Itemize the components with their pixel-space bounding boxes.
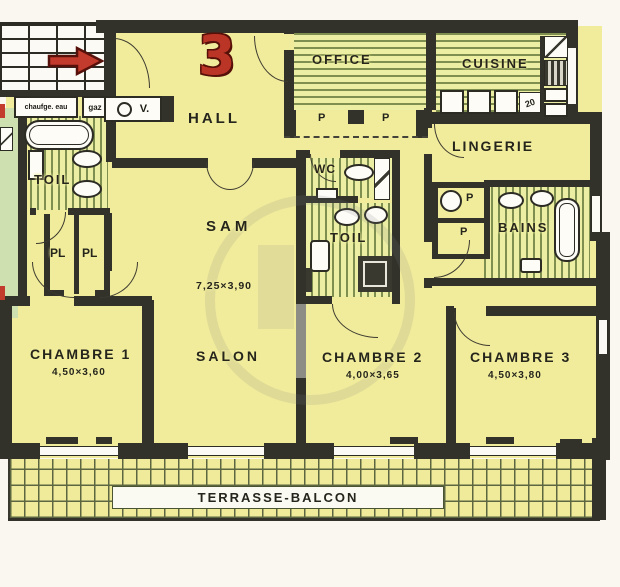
bathtub-icon — [24, 120, 94, 150]
wc-toilet-icon — [344, 164, 374, 181]
wall-chambre1-left — [0, 296, 12, 458]
kitchen-unit-2 — [544, 103, 568, 117]
chambre1-dimensions: 4,50×3,60 — [52, 367, 106, 378]
terrace-edge — [8, 518, 600, 521]
wall-p-divider — [432, 218, 484, 223]
office-hatch — [294, 33, 426, 110]
toilette-gauche-label: TOIL — [34, 172, 71, 187]
wall-pl-mid — [74, 214, 79, 294]
pier-4 — [414, 443, 470, 459]
wall-wc-top — [340, 150, 400, 158]
placard-bains-1-label: P — [466, 192, 473, 204]
vestiaire-box: V. — [104, 96, 162, 122]
wall-chambre3-top-b — [486, 306, 602, 316]
chambre1-label: CHAMBRE 1 — [30, 346, 131, 362]
sill-tab-2 — [96, 437, 112, 444]
window-right-lower — [598, 320, 608, 354]
wall-bains-top — [484, 180, 590, 187]
vestiaire-circle-icon — [117, 102, 132, 117]
window-right-upper — [567, 48, 577, 104]
wall-office-cuisine — [426, 26, 436, 110]
wall-hall-left — [106, 122, 116, 162]
wall-hall-sam-left — [112, 158, 208, 168]
wc-label: WC — [314, 162, 336, 176]
bains-label: BAINS — [498, 220, 548, 235]
kitchen-badge: 20 — [519, 92, 541, 113]
red-mark-2 — [0, 286, 5, 300]
placard-bains-2-label: P — [460, 226, 467, 238]
pier-2 — [118, 443, 188, 459]
placard-office-1-label: P — [318, 112, 325, 124]
kitchen-fridge-icon — [544, 36, 568, 58]
sam-dimensions: 7,25×3,90 — [196, 280, 252, 292]
salon-label: SALON — [196, 348, 260, 364]
placard-office-2-label: P — [382, 112, 389, 124]
bains-toilet-icon — [498, 192, 524, 209]
pier-1 — [0, 443, 40, 459]
post-placards-left — [284, 110, 296, 138]
bains-bidet-icon — [530, 190, 554, 207]
kitchen-unit-1 — [544, 88, 568, 102]
kitchen-appliance-1 — [440, 90, 464, 114]
pier-3 — [264, 443, 334, 459]
bidet-icon — [72, 180, 102, 198]
sill-tab-1 — [46, 437, 78, 444]
wall-vestiaire-stub — [160, 96, 174, 122]
bains-bathtub-icon — [554, 198, 580, 262]
chambre3-dimensions: 4,50×3,80 — [488, 370, 542, 381]
post-placards-mid — [348, 110, 364, 124]
chambre3-label: CHAMBRE 3 — [470, 349, 571, 365]
wall-bains-bottom — [424, 278, 602, 286]
wall-chambre2-chambre3 — [446, 308, 456, 446]
placard-left-1-label: PL — [50, 246, 65, 260]
terrasse-label: TERRASSE-BALCON — [198, 490, 359, 505]
wall-chambre3-top-a — [446, 306, 454, 316]
wall-p-top — [432, 182, 490, 188]
terrace-band: TERRASSE-BALCON — [112, 486, 444, 509]
kitchen-appliance-3 — [494, 90, 518, 114]
chambre2-label: CHAMBRE 2 — [322, 349, 423, 365]
wall-lingerie-left-a — [424, 108, 432, 128]
sill-tab-5 — [560, 439, 582, 446]
kitchen-stove-icon — [544, 60, 568, 86]
placards-front-line — [284, 136, 428, 138]
office-label: OFFICE — [312, 52, 372, 67]
wall-right-step — [590, 232, 610, 241]
lingerie-label: LINGERIE — [452, 138, 534, 154]
floor-plan: 3 chaufge. eau gaz V. 20 — [0, 0, 620, 587]
edge-symbol-icon — [0, 127, 13, 151]
sam-label: SAM — [206, 218, 251, 235]
sill-tab-4 — [486, 437, 514, 444]
wall-wc-top-stub — [296, 150, 310, 158]
sill-tab-3 — [390, 437, 418, 444]
hall-label: HALL — [188, 110, 240, 127]
boiler-circle-icon — [440, 190, 462, 212]
wall-chambre1-salon — [142, 300, 154, 446]
cuisine-label: CUISINE — [462, 56, 529, 71]
toilette-centrale-label: TOIL — [330, 230, 367, 245]
water-heater-box: chaufge. eau — [14, 96, 78, 118]
chambre2-dimensions: 4,00×3,65 — [346, 370, 400, 381]
watermark-building — [258, 245, 294, 329]
wall-p-right — [484, 182, 490, 258]
placard-left-2-label: PL — [82, 246, 97, 260]
kitchen-appliance-2 — [467, 90, 491, 114]
toilet-icon — [72, 150, 102, 168]
wall-lingerie-left-b — [424, 154, 432, 242]
wc-mirror-panel-icon — [374, 158, 390, 200]
apartment-number: 3 — [198, 24, 236, 87]
wall-office-stub — [284, 26, 294, 34]
bains-sink-icon — [520, 258, 542, 273]
wall-chambre1-top-b — [74, 296, 152, 306]
wall-top — [96, 20, 578, 33]
red-mark-1 — [0, 104, 5, 118]
entrance-arrow-icon — [46, 44, 106, 78]
